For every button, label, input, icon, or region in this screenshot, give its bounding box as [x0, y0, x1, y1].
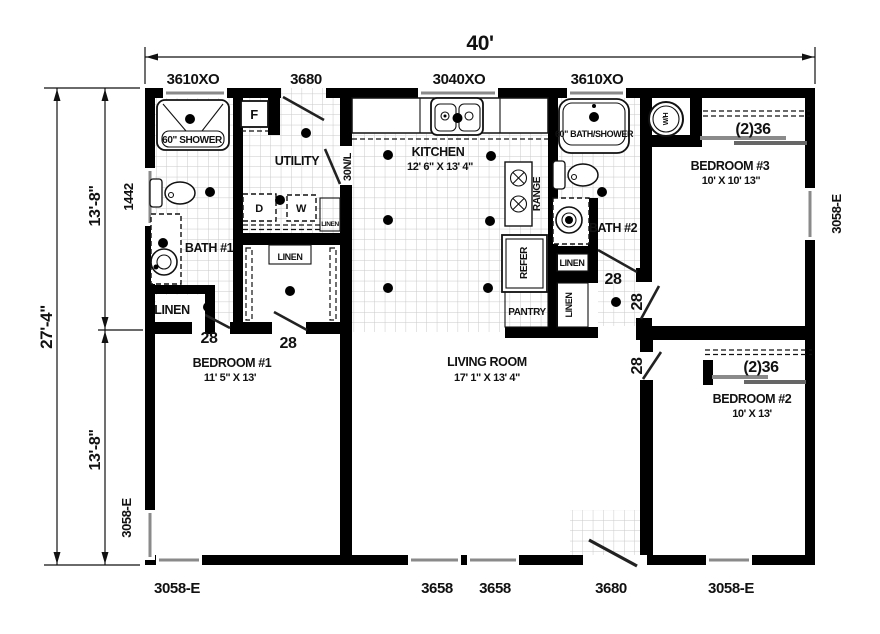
room-size-bed3: 10' X 10' 13" [702, 175, 761, 187]
range-icon [505, 162, 532, 226]
window-3658-living-2 [467, 555, 519, 565]
door-label-28-bed3: 28 [629, 293, 646, 310]
closet-door-swing [274, 312, 307, 330]
floor-plan-drawing: 40' 27'-4" 13'-8" 13'-8" [0, 0, 880, 634]
fixture-label-linen-utility: LINEN [321, 221, 339, 228]
door-opening-3680-entry [583, 555, 647, 565]
label-door-3680-top: 3680 [290, 71, 322, 88]
kitchen-sink-icon [431, 98, 483, 135]
room-label-living: LIVING ROOM [447, 355, 527, 369]
tile-floor-regions [155, 88, 640, 555]
label-window-3058e-right: 3058-E [829, 194, 844, 234]
floor-plan-canvas: 40' 27'-4" 13'-8" 13'-8" [0, 0, 880, 634]
sink-vanity-icon-bath1 [151, 214, 181, 284]
fixture-label-furnace: F [250, 107, 258, 122]
window-3058e-bed2 [706, 555, 752, 565]
fixture-label-linen-bath2b: LINEN [564, 292, 574, 317]
fixture-label-pantry: PANTRY [508, 307, 546, 318]
window-3058e-bed1 [156, 555, 202, 565]
dim-lower-half: 13'-8" [87, 429, 104, 470]
label-window-3058e-left: 3058-E [119, 498, 134, 538]
room-label-bath1: BATH #1 [185, 241, 234, 255]
room-label-bed2: BEDROOM #2 [713, 392, 792, 406]
room-label-utility: UTILITY [275, 154, 320, 168]
fixture-label-dryer: D [255, 203, 263, 215]
door-label-30nl: 30N/L [342, 152, 354, 181]
closet-label-236-bed2: (2)36 [743, 359, 779, 376]
door-label-28-bed2: 28 [629, 357, 646, 374]
door-label-28-closet: 28 [280, 335, 297, 352]
room-label-bed1: BEDROOM #1 [193, 356, 272, 370]
room-size-bed1: 11' 5" X 13' [204, 372, 257, 384]
window-3658-living-1 [408, 555, 461, 565]
window-3058e-left [145, 510, 155, 560]
window-3058e-right [805, 188, 815, 240]
fixture-label-range: RANGE [532, 176, 543, 211]
bathtub-icon [559, 99, 629, 153]
label-window-3058e-bed2: 3058-E [708, 580, 754, 597]
window-3610xo-bath2 [567, 88, 626, 98]
label-door-3680-entry: 3680 [595, 580, 627, 597]
label-window-3040xo: 3040XO [433, 71, 486, 88]
fixture-label-washer: W [296, 203, 307, 215]
label-window-3658-2: 3658 [479, 580, 511, 597]
room-size-living: 17' 1" X 13' 4" [454, 372, 520, 384]
dim-upper-half: 13'-8" [87, 185, 104, 226]
door-opening-3680-top [281, 88, 326, 98]
fixture-label-refer: REFER [519, 246, 530, 279]
fixture-label-shower: 60" SHOWER [162, 135, 223, 146]
door-label-28-bath1: 28 [201, 330, 218, 347]
closet-label-236-bed3: (2)36 [735, 121, 771, 138]
dim-overall-depth: 27'-4" [37, 305, 56, 349]
room-size-bed2: 10' X 13' [732, 408, 772, 420]
label-window-3610xo-2: 3610XO [571, 71, 624, 88]
room-label-bed3: BEDROOM #3 [691, 159, 770, 173]
label-window-1442: 1442 [121, 183, 136, 210]
toilet-icon-bath1 [150, 179, 195, 207]
window-3610xo-shower [163, 88, 227, 98]
room-label-kitchen: KITCHEN [412, 145, 465, 159]
fixture-label-linen-closet: LINEN [277, 252, 302, 262]
dim-overall-width: 40' [466, 32, 493, 55]
window-3040xo-kitchen [418, 88, 498, 98]
room-size-kitchen: 12' 6" X 13' 4" [407, 161, 473, 173]
fixture-label-water-heater: W/H [663, 112, 670, 125]
label-window-3058e-bed1: 3058-E [154, 580, 200, 597]
label-window-3610xo-1: 3610XO [167, 71, 220, 88]
sink-vanity-icon-bath2 [553, 198, 589, 244]
fixture-label-linen-bath1: LINEN [154, 303, 190, 317]
fixture-label-tub: 60" BATH/SHOWER [555, 129, 634, 139]
door-label-28-bath2: 28 [605, 271, 622, 288]
toilet-icon-bath2 [553, 161, 598, 189]
fixture-label-linen-bath2a: LINEN [559, 258, 584, 268]
room-label-bath2: BATH #2 [589, 221, 638, 235]
label-window-3658-1: 3658 [421, 580, 453, 597]
